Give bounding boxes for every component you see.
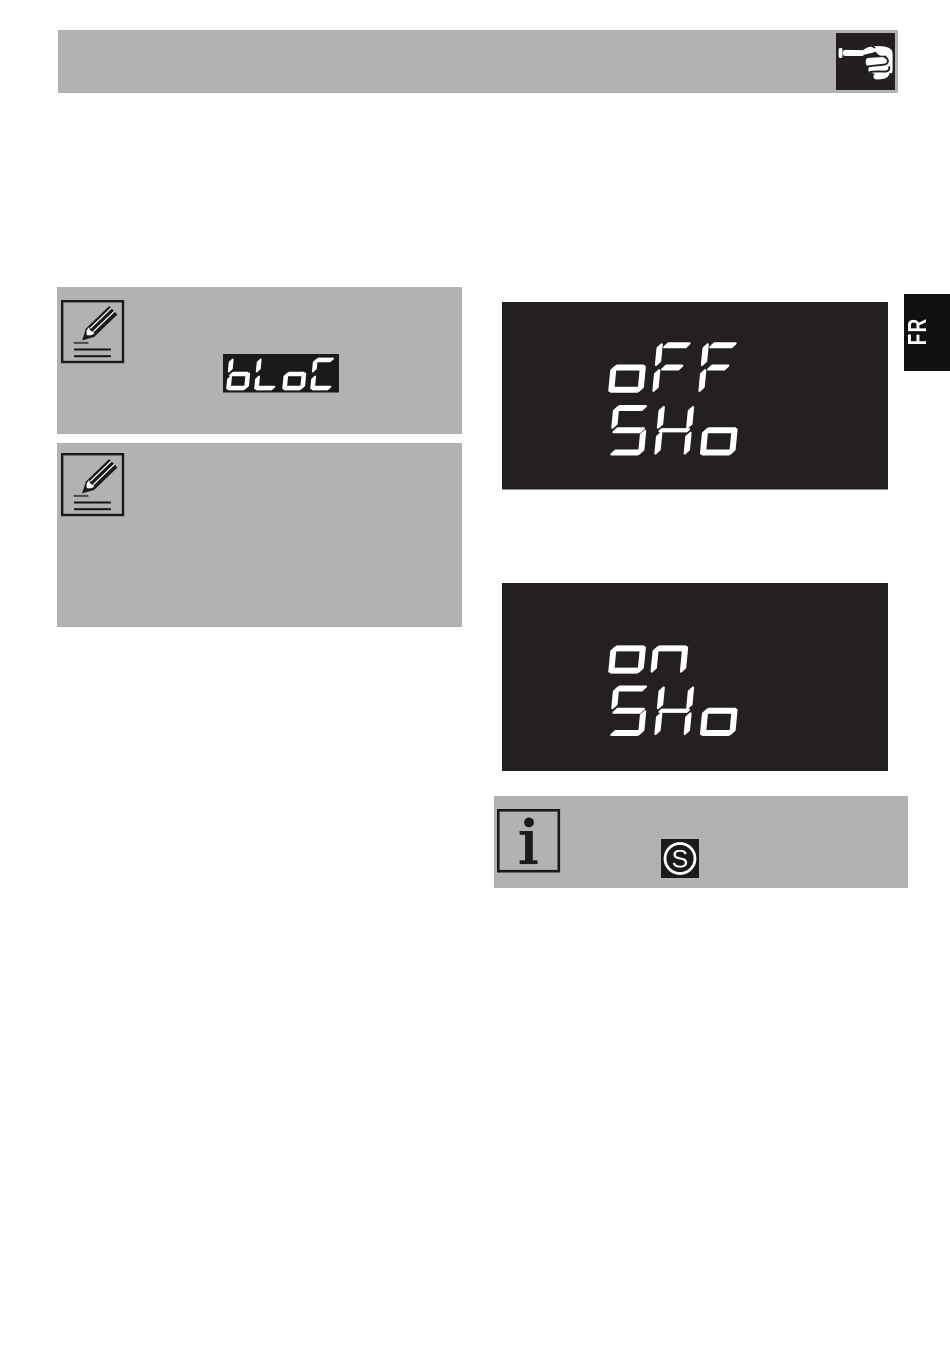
svg-text:S: S [672,845,689,873]
